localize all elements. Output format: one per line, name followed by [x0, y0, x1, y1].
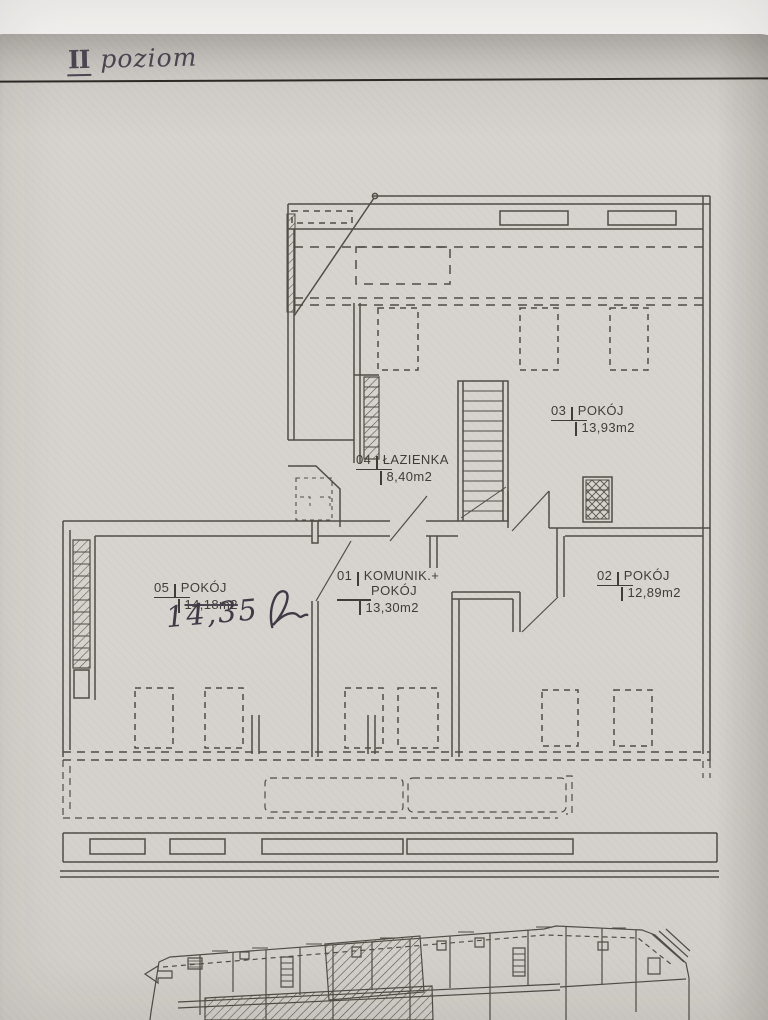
room-label-03: 03 POKÓJ 13,93m2 — [551, 404, 635, 436]
room-number: 04 — [356, 453, 371, 468]
room-label-04: 04 ŁAZIENKA 8,40m2 — [356, 453, 449, 485]
room-name-line2: POKÓJ — [337, 584, 439, 599]
bathroom-walls — [288, 440, 354, 527]
room-area: 13,30m2 — [361, 601, 419, 616]
label-divider — [357, 572, 359, 586]
flue-shaft-bathroom — [354, 303, 379, 463]
lower-dashed-boundary — [63, 752, 710, 760]
room-number: 05 — [154, 581, 169, 596]
room-name: POKÓJ — [624, 569, 670, 584]
label-divider — [617, 572, 619, 586]
skylight-outlines-lower — [135, 688, 652, 748]
room-label-01: 01 KOMUNIK.+ POKÓJ 13,30m2 — [337, 569, 439, 615]
room-name: POKÓJ — [181, 581, 227, 596]
room-area: 12,89m2 — [623, 586, 681, 601]
room-name: POKÓJ — [578, 404, 624, 419]
middle-wall — [63, 491, 710, 568]
room-name: KOMUNIK.+ — [364, 569, 439, 584]
chimney-shaft-room03 — [583, 477, 612, 522]
label-divider — [571, 407, 573, 421]
room-area: 8,40m2 — [382, 470, 433, 485]
upper-block-walls — [287, 193, 710, 761]
overview-mini-plan — [145, 926, 690, 1020]
staircase — [458, 381, 508, 521]
lower-block-walls — [63, 521, 564, 757]
scanned-floor-plan-photo: II poziom — [0, 0, 768, 1020]
roof-slope-dashed-lines — [294, 247, 703, 305]
facade-window-band — [60, 833, 719, 877]
room-name: ŁAZIENKA — [383, 453, 449, 468]
terrace-dashed-outline — [63, 760, 710, 818]
room-number: 01 — [337, 569, 352, 584]
room-number: 03 — [551, 404, 566, 419]
floor-plan-drawing — [0, 0, 768, 1020]
label-divider — [376, 456, 378, 470]
label-divider — [174, 584, 176, 598]
skylight-outlines-upper — [378, 308, 648, 370]
handwritten-initial-flourish — [261, 582, 311, 634]
room-area: 13,93m2 — [577, 421, 635, 436]
room-label-02: 02 POKÓJ 12,89m2 — [597, 569, 681, 601]
top-wall-windows — [292, 211, 676, 225]
corrected-area-value: 14,35 — [164, 592, 260, 634]
room-number: 02 — [597, 569, 612, 584]
